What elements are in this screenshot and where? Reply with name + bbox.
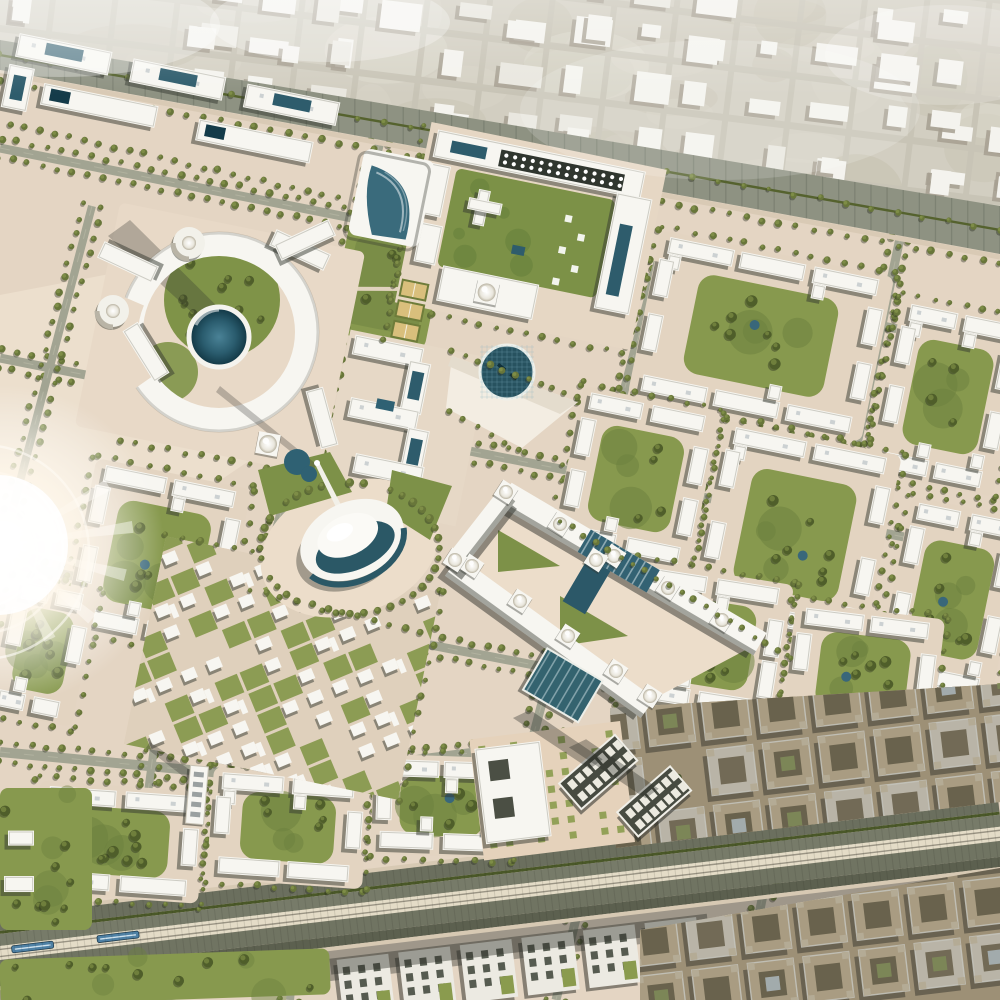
linear-park-west	[0, 785, 92, 930]
city-masterplan-aerial-render	[0, 0, 1000, 1000]
masterplan-scene-canvas	[0, 0, 1000, 1000]
